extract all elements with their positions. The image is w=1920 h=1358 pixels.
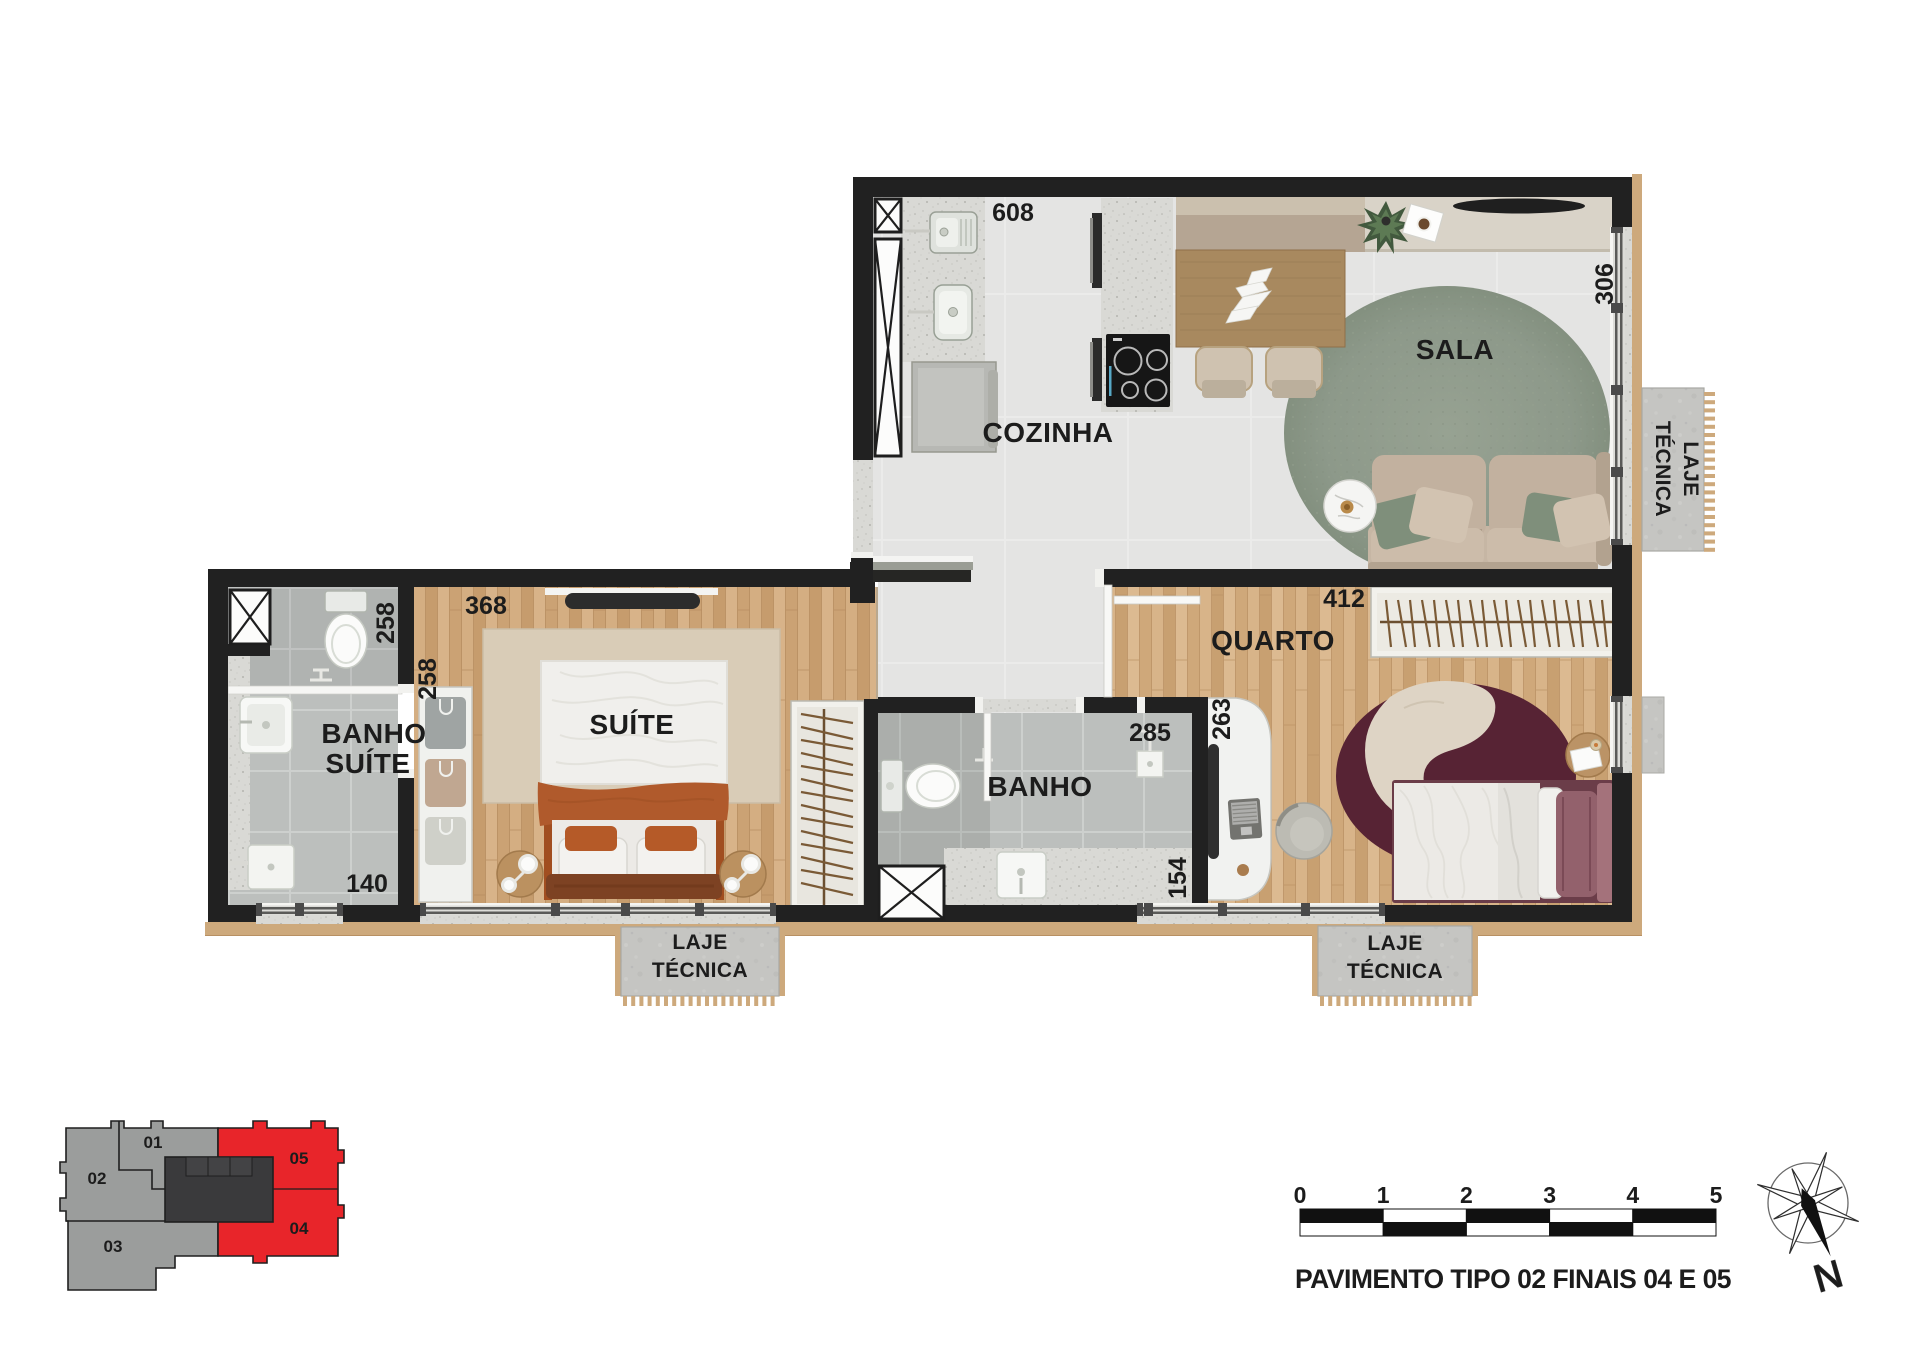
svg-text:SUÍTE: SUÍTE [326, 748, 411, 779]
svg-text:01: 01 [144, 1133, 163, 1152]
svg-text:263: 263 [1208, 698, 1236, 740]
svg-text:154: 154 [1164, 857, 1192, 899]
svg-text:05: 05 [290, 1149, 309, 1168]
svg-text:03: 03 [104, 1237, 123, 1256]
svg-text:TÉCNICA: TÉCNICA [1347, 960, 1443, 983]
svg-text:608: 608 [992, 199, 1034, 227]
svg-text:TÉCNICA: TÉCNICA [652, 959, 748, 982]
svg-text:3: 3 [1543, 1182, 1556, 1208]
svg-text:0: 0 [1294, 1182, 1307, 1208]
svg-text:SUÍTE: SUÍTE [590, 709, 675, 740]
svg-text:04: 04 [290, 1219, 309, 1238]
svg-text:306: 306 [1591, 263, 1619, 305]
svg-text:TÉCNICA: TÉCNICA [1651, 421, 1674, 517]
svg-text:258: 258 [414, 658, 442, 700]
svg-text:5: 5 [1710, 1182, 1723, 1208]
svg-text:LAJE: LAJE [1367, 932, 1422, 955]
svg-text:4: 4 [1626, 1182, 1639, 1208]
svg-text:LAJE: LAJE [1679, 441, 1702, 496]
svg-text:412: 412 [1323, 585, 1365, 613]
svg-text:02: 02 [88, 1169, 107, 1188]
svg-text:QUARTO: QUARTO [1211, 625, 1335, 656]
svg-text:SALA: SALA [1416, 334, 1494, 365]
svg-text:PAVIMENTO TIPO 02 FINAIS 04 E: PAVIMENTO TIPO 02 FINAIS 04 E 05 [1295, 1264, 1731, 1294]
svg-text:1: 1 [1377, 1182, 1390, 1208]
svg-text:2: 2 [1460, 1182, 1473, 1208]
svg-text:140: 140 [346, 870, 388, 898]
svg-text:368: 368 [465, 592, 507, 620]
svg-text:BANHO: BANHO [987, 771, 1092, 802]
svg-text:285: 285 [1129, 719, 1171, 747]
svg-text:258: 258 [372, 602, 400, 644]
svg-text:BANHO: BANHO [321, 718, 426, 749]
svg-text:LAJE: LAJE [672, 931, 727, 954]
svg-text:COZINHA: COZINHA [982, 417, 1113, 448]
